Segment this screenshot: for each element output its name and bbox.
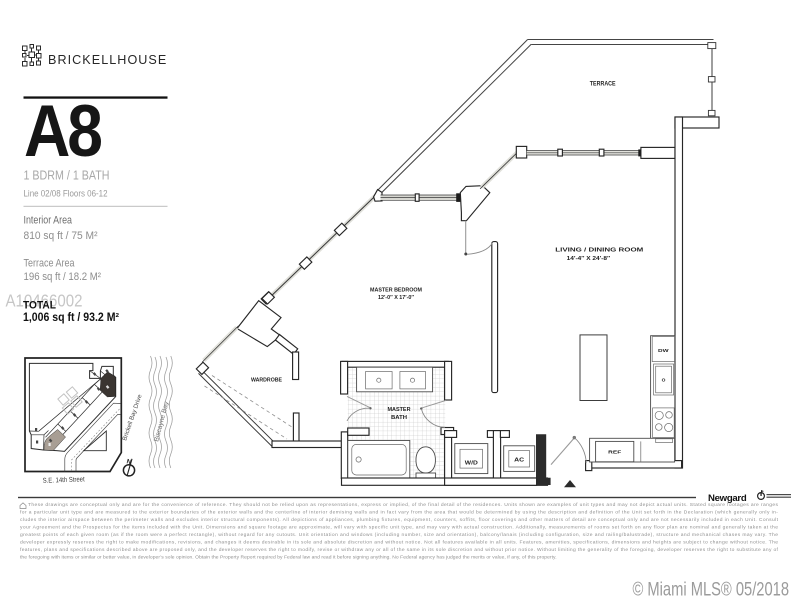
- svg-text:cludes the interior airspace b: cludes the interior airspace between the…: [20, 517, 779, 523]
- svg-text:AC: AC: [514, 458, 525, 464]
- svg-text:REF: REF: [608, 450, 621, 456]
- svg-text:your Agreement and the Prospec: your Agreement and the Prospectus for th…: [20, 524, 778, 530]
- svg-text:features, plans and specificat: features, plans and specifications descr…: [20, 547, 779, 553]
- svg-text:MASTER BEDROOM: MASTER BEDROOM: [370, 288, 422, 294]
- svg-text:MASTER: MASTER: [388, 407, 412, 413]
- svg-text:BATH: BATH: [391, 415, 407, 421]
- svg-text:the foregoing with items or si: the foregoing with items or similar or b…: [20, 554, 557, 560]
- svg-text:A8: A8: [24, 90, 102, 172]
- svg-text:DW: DW: [658, 348, 669, 354]
- svg-text:14′-4″ X 24′-8″: 14′-4″ X 24′-8″: [567, 256, 611, 262]
- svg-text:for a particular unit type and: for a particular unit type and are measu…: [20, 509, 778, 515]
- svg-text:LIVING / DINING ROOM: LIVING / DINING ROOM: [555, 248, 643, 254]
- svg-text:TERRACE: TERRACE: [590, 80, 616, 87]
- svg-text:greatest points of each given: greatest points of each given room (as i…: [20, 532, 778, 538]
- svg-text:developer expressly reserves t: developer expressly reserves the right t…: [20, 539, 778, 545]
- svg-text:S.E. 14th Street: S.E. 14th Street: [43, 476, 85, 484]
- svg-text:1,006 sq ft / 93.2 M²: 1,006 sq ft / 93.2 M²: [23, 311, 119, 324]
- svg-text:Terrace Area: Terrace Area: [24, 258, 75, 270]
- svg-text:TOTAL: TOTAL: [23, 299, 56, 311]
- svg-text:Line 02/08 Floors 06-12: Line 02/08 Floors 06-12: [24, 188, 108, 198]
- svg-text:WARDROBE: WARDROBE: [251, 378, 282, 384]
- svg-text:810 sq ft / 75 M²: 810 sq ft / 75 M²: [24, 230, 98, 242]
- svg-text:BRICKELLHOUSE: BRICKELLHOUSE: [48, 53, 167, 67]
- svg-text:These drawings are conceptual: These drawings are conceptual only and a…: [28, 502, 778, 508]
- svg-text:12′-0″ X 17′-0″: 12′-0″ X 17′-0″: [378, 295, 414, 301]
- svg-text:196 sq ft / 18.2 M²: 196 sq ft / 18.2 M²: [24, 271, 102, 283]
- svg-text:1 BDRM / 1 BATH: 1 BDRM / 1 BATH: [24, 168, 110, 183]
- svg-text:O: O: [662, 378, 666, 384]
- svg-text:W/D: W/D: [465, 461, 478, 467]
- svg-text:Interior Area: Interior Area: [24, 214, 73, 226]
